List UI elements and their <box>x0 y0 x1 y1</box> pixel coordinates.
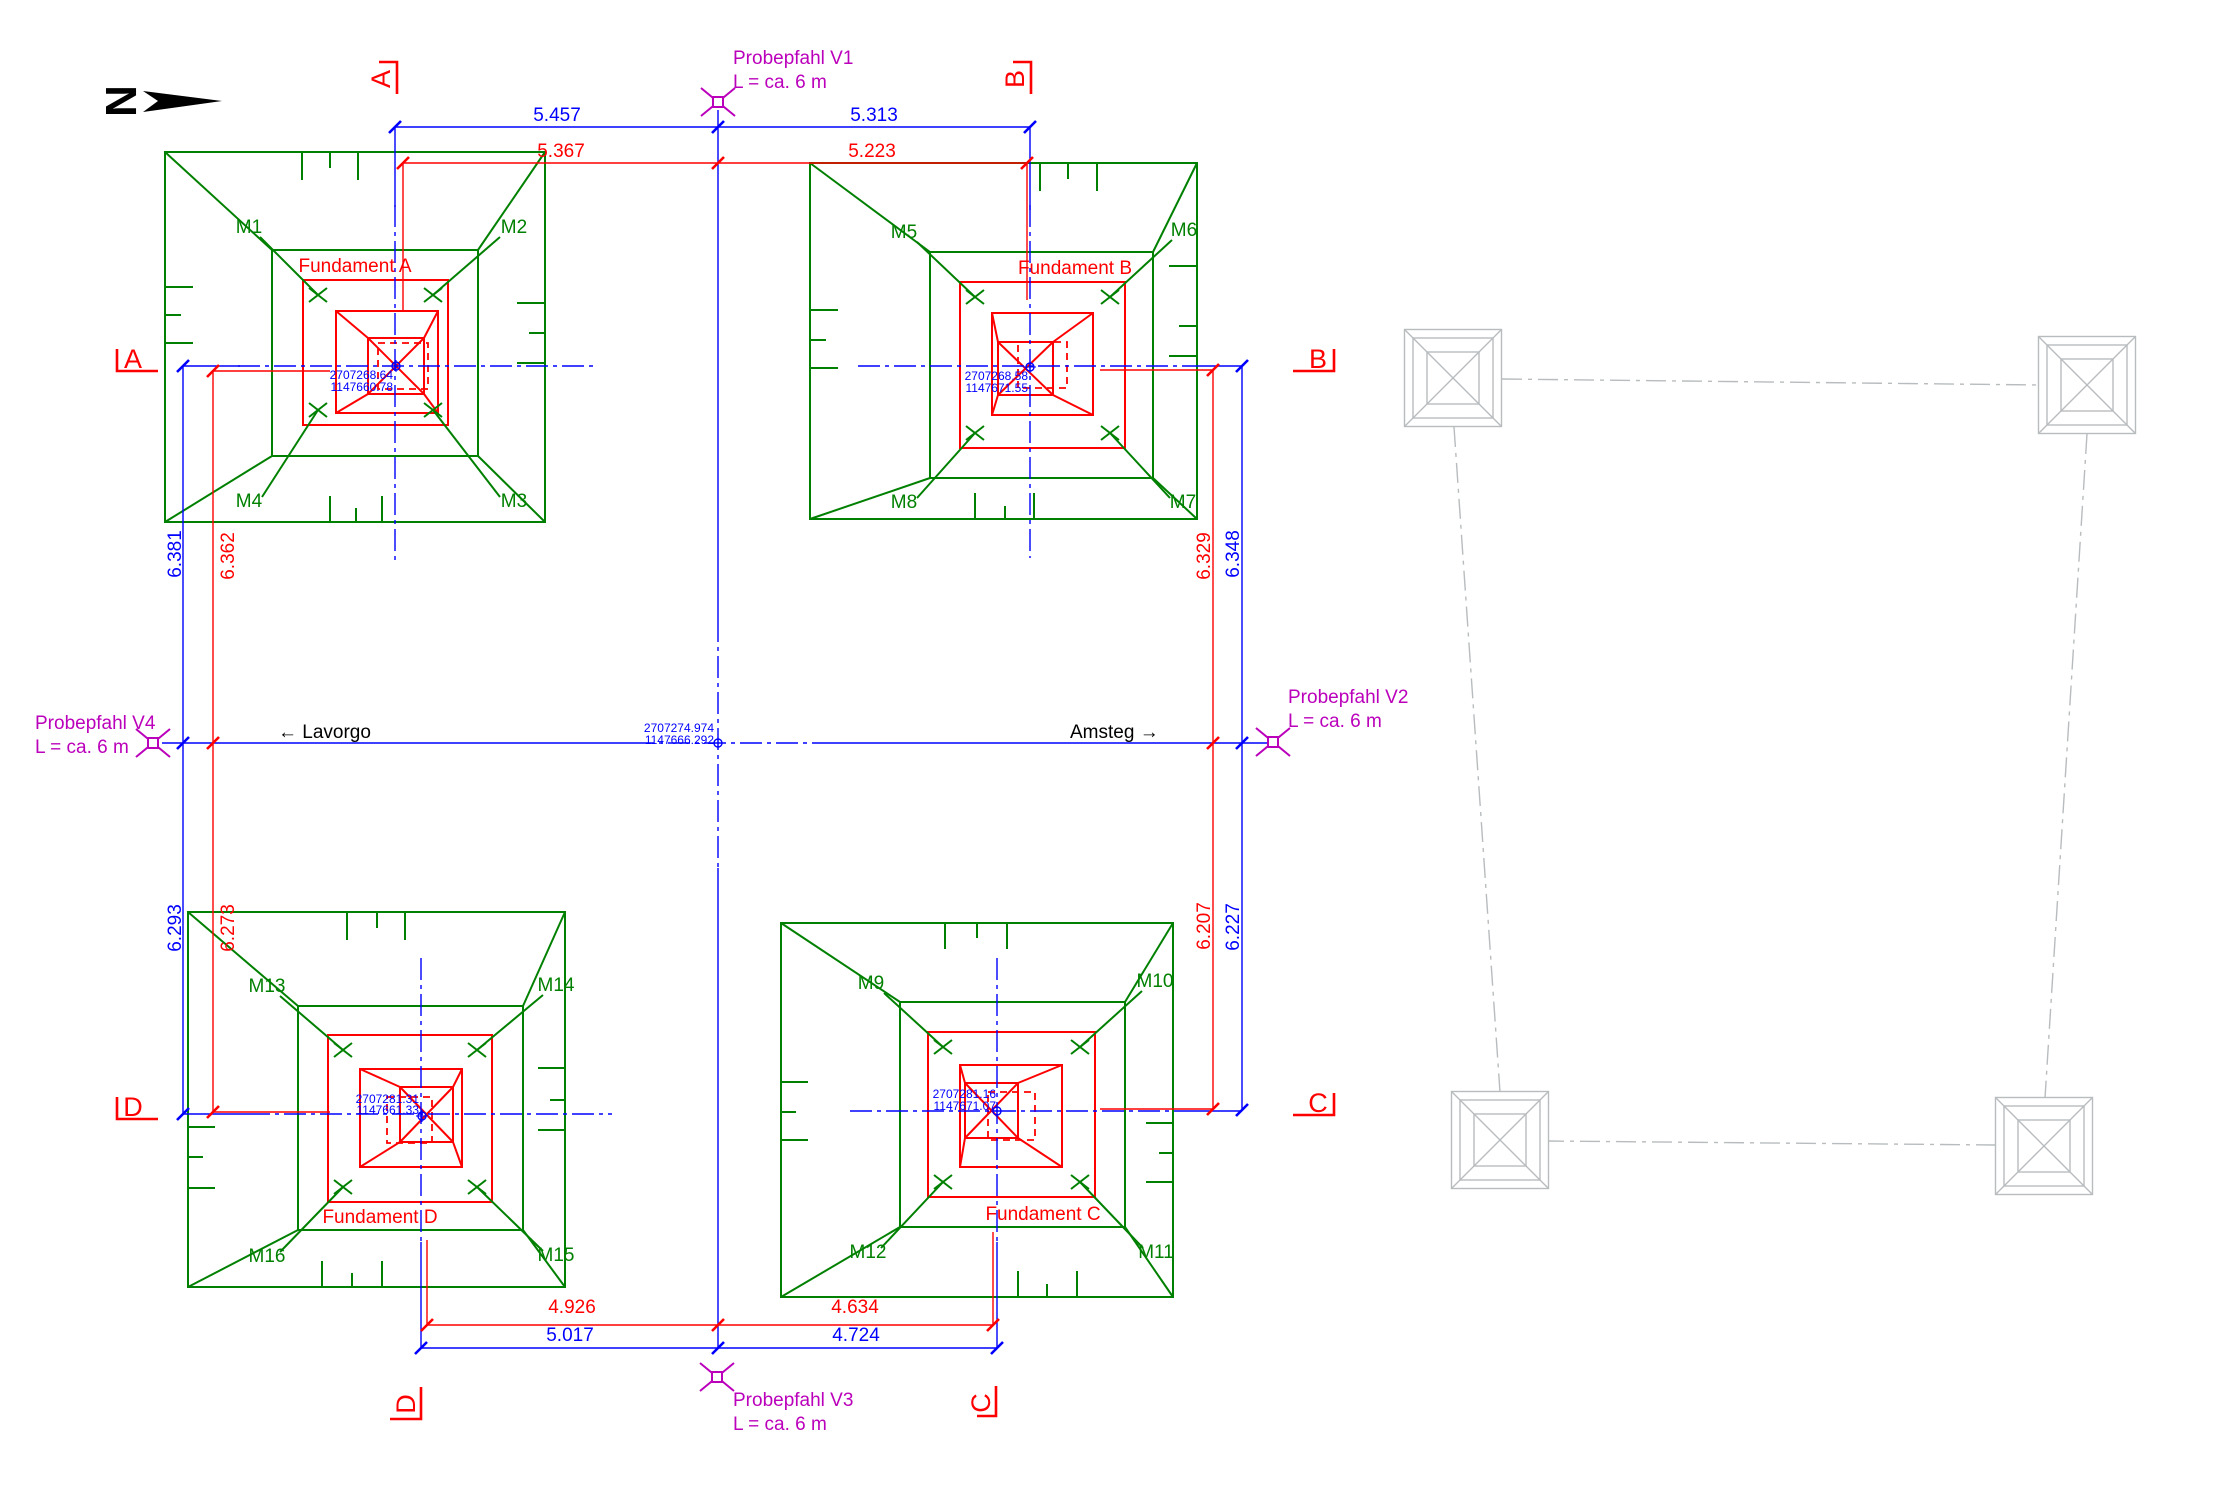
dim-top-red-left: 5.367 <box>537 141 585 162</box>
ghost-foundation-b <box>2039 337 2136 434</box>
ghost-foundation-c <box>1996 1098 2093 1195</box>
foundation-b-body <box>960 282 1125 448</box>
pile-v3-length: L = ca. 6 m <box>733 1414 827 1435</box>
dim-right-blue-up: 6.348 <box>1223 530 1244 578</box>
section-top-a: A <box>366 70 396 88</box>
dim-right-red-low: 6.207 <box>1194 902 1215 950</box>
section-bottom-c: C <box>966 1393 996 1413</box>
dim-left-blue-low: 6.293 <box>165 904 186 952</box>
marker-m3: M3 <box>501 491 527 512</box>
marker-m7: M7 <box>1170 492 1196 513</box>
foundation-c-body <box>928 1032 1095 1197</box>
section-right-c: C <box>1308 1088 1328 1118</box>
foundation-d-label: Fundament D <box>322 1207 437 1228</box>
marker-m6: M6 <box>1171 220 1197 241</box>
foundation-a-body <box>303 280 448 425</box>
dim-bottom-blue-left: 5.017 <box>546 1325 594 1346</box>
marker-m14: M14 <box>538 975 575 996</box>
marker-m12: M12 <box>850 1242 887 1263</box>
dim-top-red-right: 5.223 <box>848 141 896 162</box>
section-bottom-d: D <box>391 1394 421 1414</box>
north-label: N <box>96 85 145 117</box>
pile-v1-label: Probepfahl V1 <box>733 48 853 69</box>
route-amsteg: Amsteg → <box>1070 722 1159 743</box>
foundation-d-body <box>328 1035 492 1202</box>
route-lavorgo: ← Lavorgo <box>278 722 371 743</box>
marker-m13: M13 <box>249 976 286 997</box>
foundation-a-northing: 1147660.78 <box>330 380 393 394</box>
dim-left-blue-up: 6.381 <box>165 530 186 578</box>
dim-left-red-low: 6.273 <box>218 904 239 952</box>
dim-top-blue-left: 5.457 <box>533 105 581 126</box>
marker-m4: M4 <box>236 491 263 512</box>
marker-m16: M16 <box>249 1246 286 1267</box>
foundation-plan-page: N <box>0 0 2225 1507</box>
foundation-c-northing: 1147671.07 <box>933 1099 996 1113</box>
dim-left-red-up: 6.362 <box>218 532 239 580</box>
dim-bottom-red-left: 4.926 <box>548 1297 596 1318</box>
dim-bottom-red-right: 4.634 <box>831 1297 879 1318</box>
marker-m5: M5 <box>891 222 917 243</box>
dim-right-blue-low: 6.227 <box>1223 903 1244 951</box>
north-arrow-icon <box>143 91 222 112</box>
section-right-b: B <box>1309 344 1327 374</box>
marker-m1: M1 <box>236 217 262 238</box>
pile-v1-length: L = ca. 6 m <box>733 72 827 93</box>
plan-center-northing: 1147666.292 <box>645 733 715 747</box>
marker-m8: M8 <box>891 492 917 513</box>
site-plan-drawing: N <box>0 0 2225 1507</box>
pile-v2-label: Probepfahl V2 <box>1288 687 1408 708</box>
pile-v3-label: Probepfahl V3 <box>733 1390 853 1411</box>
foundation-d-northing: 1147661.33 <box>356 1103 419 1117</box>
pile-v4-length: L = ca. 6 m <box>35 737 129 758</box>
ghost-foundation-layout <box>1405 330 2136 1195</box>
marker-m15: M15 <box>538 1245 575 1266</box>
ghost-foundation-d <box>1452 1092 1549 1189</box>
dim-bottom-blue-right: 4.724 <box>832 1325 880 1346</box>
section-left-a: A <box>124 344 142 374</box>
section-left-d: D <box>123 1092 143 1122</box>
excavation-a <box>165 152 545 522</box>
marker-m11: M11 <box>1138 1242 1174 1263</box>
foundation-b-label: Fundament B <box>1018 258 1132 279</box>
dim-top-blue-right: 5.313 <box>850 105 898 126</box>
dim-right-red-up: 6.329 <box>1194 532 1215 580</box>
marker-m10: M10 <box>1137 971 1174 992</box>
foundation-b-northing: 1147671.55 <box>965 381 1028 395</box>
section-top-b: B <box>1000 70 1030 88</box>
foundation-a-label: Fundament A <box>298 256 411 277</box>
marker-m2: M2 <box>501 217 527 238</box>
foundation-c-label: Fundament C <box>985 1204 1100 1225</box>
pile-v2-length: L = ca. 6 m <box>1288 711 1382 732</box>
north-arrow: N <box>96 85 222 117</box>
pile-v2-icon <box>1256 728 1290 756</box>
ghost-foundation-a <box>1405 330 1502 427</box>
pile-v4-label: Probepfahl V4 <box>35 713 156 734</box>
pile-v3-icon <box>700 1363 734 1391</box>
marker-m9: M9 <box>858 973 884 994</box>
